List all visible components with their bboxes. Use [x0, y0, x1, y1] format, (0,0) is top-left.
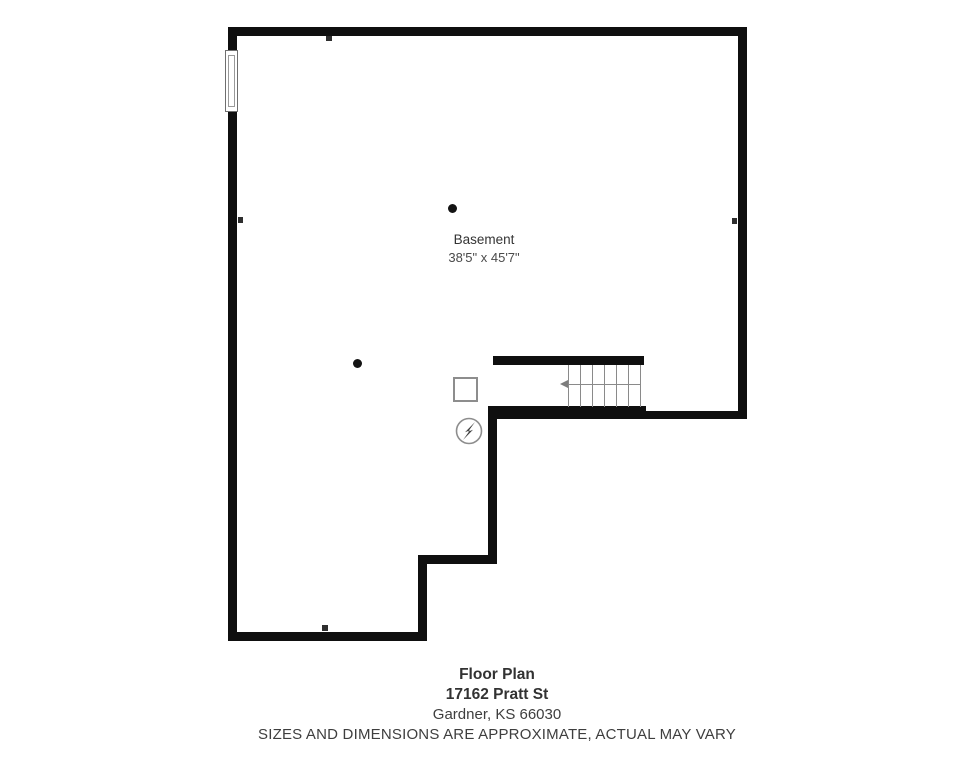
- footer-text-block: Floor Plan 17162 Pratt St Gardner, KS 66…: [37, 665, 957, 745]
- wall-top: [228, 27, 747, 36]
- room-name: Basement: [384, 231, 584, 249]
- disclaimer-text: SIZES AND DIMENSIONS ARE APPROXIMATE, AC…: [37, 725, 957, 745]
- room-dimensions: 38'5" x 45'7": [384, 249, 584, 267]
- wall-right: [738, 27, 747, 419]
- wall-step-vertical: [418, 555, 427, 641]
- wall-stair-top: [493, 356, 644, 365]
- wall-stair-bottom-inner: [488, 406, 646, 419]
- plan-title: Floor Plan: [37, 665, 957, 685]
- wall-bottom: [228, 632, 427, 641]
- room-label: Basement 38'5" x 45'7": [384, 231, 584, 267]
- stair-walk-line: [567, 384, 640, 385]
- wall-notch-horizontal: [418, 555, 497, 564]
- outlet-marker-icon: [322, 625, 328, 631]
- staircase: [568, 365, 641, 407]
- floor-plan-page: Basement 38'5" x 45'7" Floor Plan 17162 …: [0, 0, 960, 768]
- electrical-panel-icon: [455, 417, 483, 445]
- utility-box-icon: [453, 377, 478, 402]
- wall-stair-bottom-outer: [646, 411, 747, 419]
- outlet-marker-icon: [732, 218, 737, 224]
- support-post-icon: [353, 359, 362, 368]
- outlet-marker-icon: [326, 36, 332, 41]
- window-icon: [225, 50, 238, 112]
- support-post-icon: [448, 204, 457, 213]
- address-city: Gardner, KS 66030: [37, 705, 957, 725]
- wall-left: [228, 27, 237, 641]
- outlet-marker-icon: [238, 217, 243, 223]
- wall-notch-vertical: [488, 406, 497, 564]
- window-pane: [228, 55, 235, 107]
- address-street: 17162 Pratt St: [37, 685, 957, 705]
- stair-direction-arrow-icon: [560, 380, 568, 388]
